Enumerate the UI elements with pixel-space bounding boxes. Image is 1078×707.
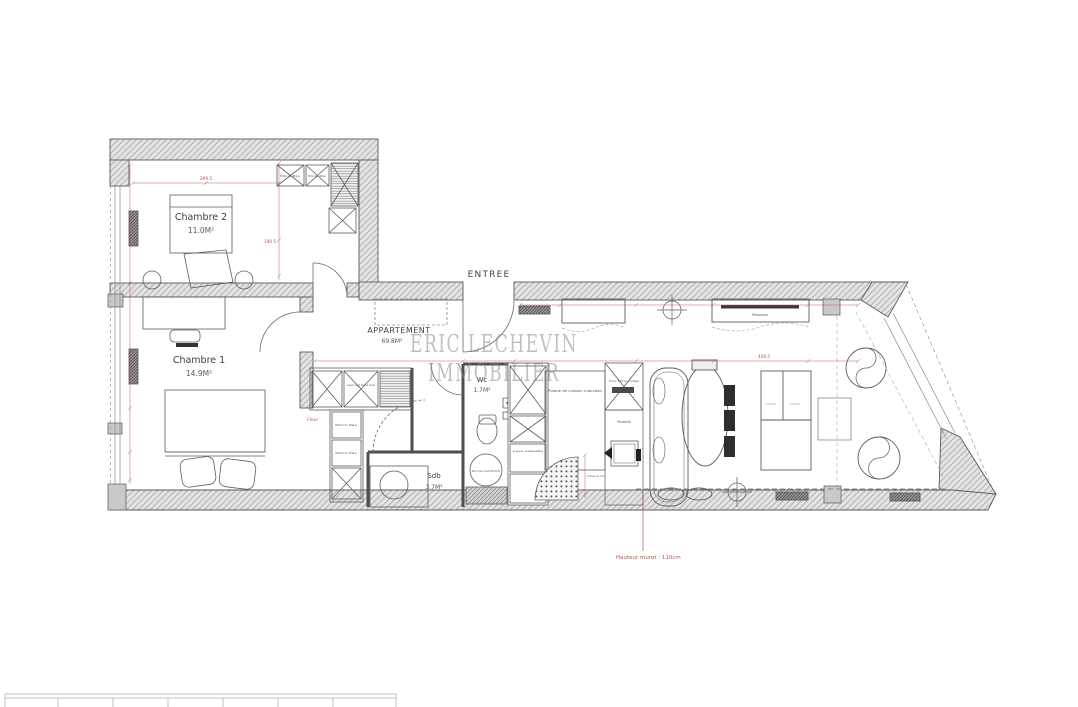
- chair-1: [724, 385, 735, 406]
- toilet-bowl: [477, 418, 497, 444]
- oven: [611, 441, 638, 466]
- sdb-door-swing: [373, 400, 425, 452]
- radiator-chambre1: [129, 349, 138, 384]
- desk: [143, 297, 225, 329]
- living-dining: [375, 295, 944, 507]
- radiator-chambre2: [129, 211, 138, 246]
- watermark-line1: ERIC LECHEVIN: [410, 330, 578, 358]
- watermark-line2: IMMOBILIER: [428, 359, 560, 387]
- lave-linge-label: Lave Linge Sèche linge: [347, 383, 375, 387]
- sofa: [761, 371, 811, 470]
- poubelle-label: Poubelle: [617, 420, 631, 424]
- pillow-right: [218, 458, 256, 490]
- sideboard: [562, 299, 625, 323]
- muret-note-label: Hauteur muret : 110cm: [616, 555, 681, 561]
- dim-408: 408.5: [758, 354, 770, 359]
- bed-chambre1: [165, 390, 265, 452]
- radiator-living-top: [519, 306, 550, 314]
- chambre1-area: 14.9M²: [186, 369, 212, 378]
- desk-chair: [170, 330, 200, 342]
- closet-hatched: [380, 371, 410, 407]
- sdb-name: Sdb: [427, 472, 441, 480]
- plaque-cuisson-label: Plaque de cuisson induction: [548, 389, 602, 393]
- chambre2-area: 11.0M²: [188, 226, 214, 235]
- television-label: Television: [751, 313, 769, 317]
- hall-closets: [310, 368, 412, 502]
- chair-2: [724, 410, 735, 431]
- plate-2: [653, 437, 665, 463]
- toilet-tank: [479, 415, 496, 424]
- exterior-walls: [110, 139, 996, 510]
- technical-slab: [466, 487, 507, 504]
- apartment-area: 69.8M²: [382, 338, 404, 345]
- four-label: Four Micro-ondes: [609, 379, 640, 383]
- ballon-label: Ballon d'eau chaude 200L 50/50: [472, 469, 500, 473]
- dining-table: [682, 366, 728, 466]
- sdb-area: 3.7M²: [425, 484, 443, 491]
- chambre1-furniture: [129, 297, 265, 490]
- side-table: [818, 398, 851, 440]
- bar-counter: [650, 368, 688, 506]
- throw-blanket: [184, 250, 233, 288]
- tv-console: [712, 299, 809, 322]
- bed-chambre2: [170, 195, 232, 253]
- radiator-living-bottom-2: [890, 493, 920, 501]
- dim-190: 190.5: [264, 239, 276, 244]
- entree-label: ENTREE: [468, 270, 511, 280]
- floor-plan-svg: ENTREE APPARTEMENT 69.8M² Chambre 2 11.0…: [0, 0, 1078, 707]
- console-entry: [375, 299, 447, 325]
- pax-a-label: 50cm Pax: [280, 174, 301, 178]
- radiator-living-bottom-1: [776, 492, 808, 500]
- desk-chair-back: [176, 343, 198, 347]
- chair-3: [724, 436, 735, 457]
- chambre2-name: Chambre 2: [175, 212, 227, 223]
- floor-plan-page: ENTREE APPARTEMENT 69.8M² Chambre 2 11.0…: [0, 0, 1078, 707]
- chambre1-name: Chambre 1: [173, 355, 225, 366]
- lave-vaisselle-label: Lave vaisselle: [513, 449, 543, 453]
- dim-299: 299.5: [200, 176, 212, 181]
- fleur-label: Fleur: [307, 417, 318, 423]
- title-block: [5, 694, 396, 707]
- chambre2-door-swing: [313, 263, 347, 297]
- plate-1: [653, 378, 665, 404]
- pax-d-label: 50cm Pax: [335, 451, 358, 455]
- chambre1-door-swing: [260, 312, 300, 352]
- pillow-left: [179, 456, 217, 488]
- pax-c-label: 50cm Pax: [335, 423, 358, 427]
- pax-b-label: 50cm Pax: [308, 174, 327, 178]
- tv: [721, 305, 799, 309]
- chambre2-furniture: [129, 163, 358, 289]
- cave-vin-label: Cave à vin: [587, 474, 605, 478]
- watermark: ERIC LECHEVIN IMMOBILIER: [410, 330, 578, 387]
- wc-area: 1.7M²: [473, 387, 491, 394]
